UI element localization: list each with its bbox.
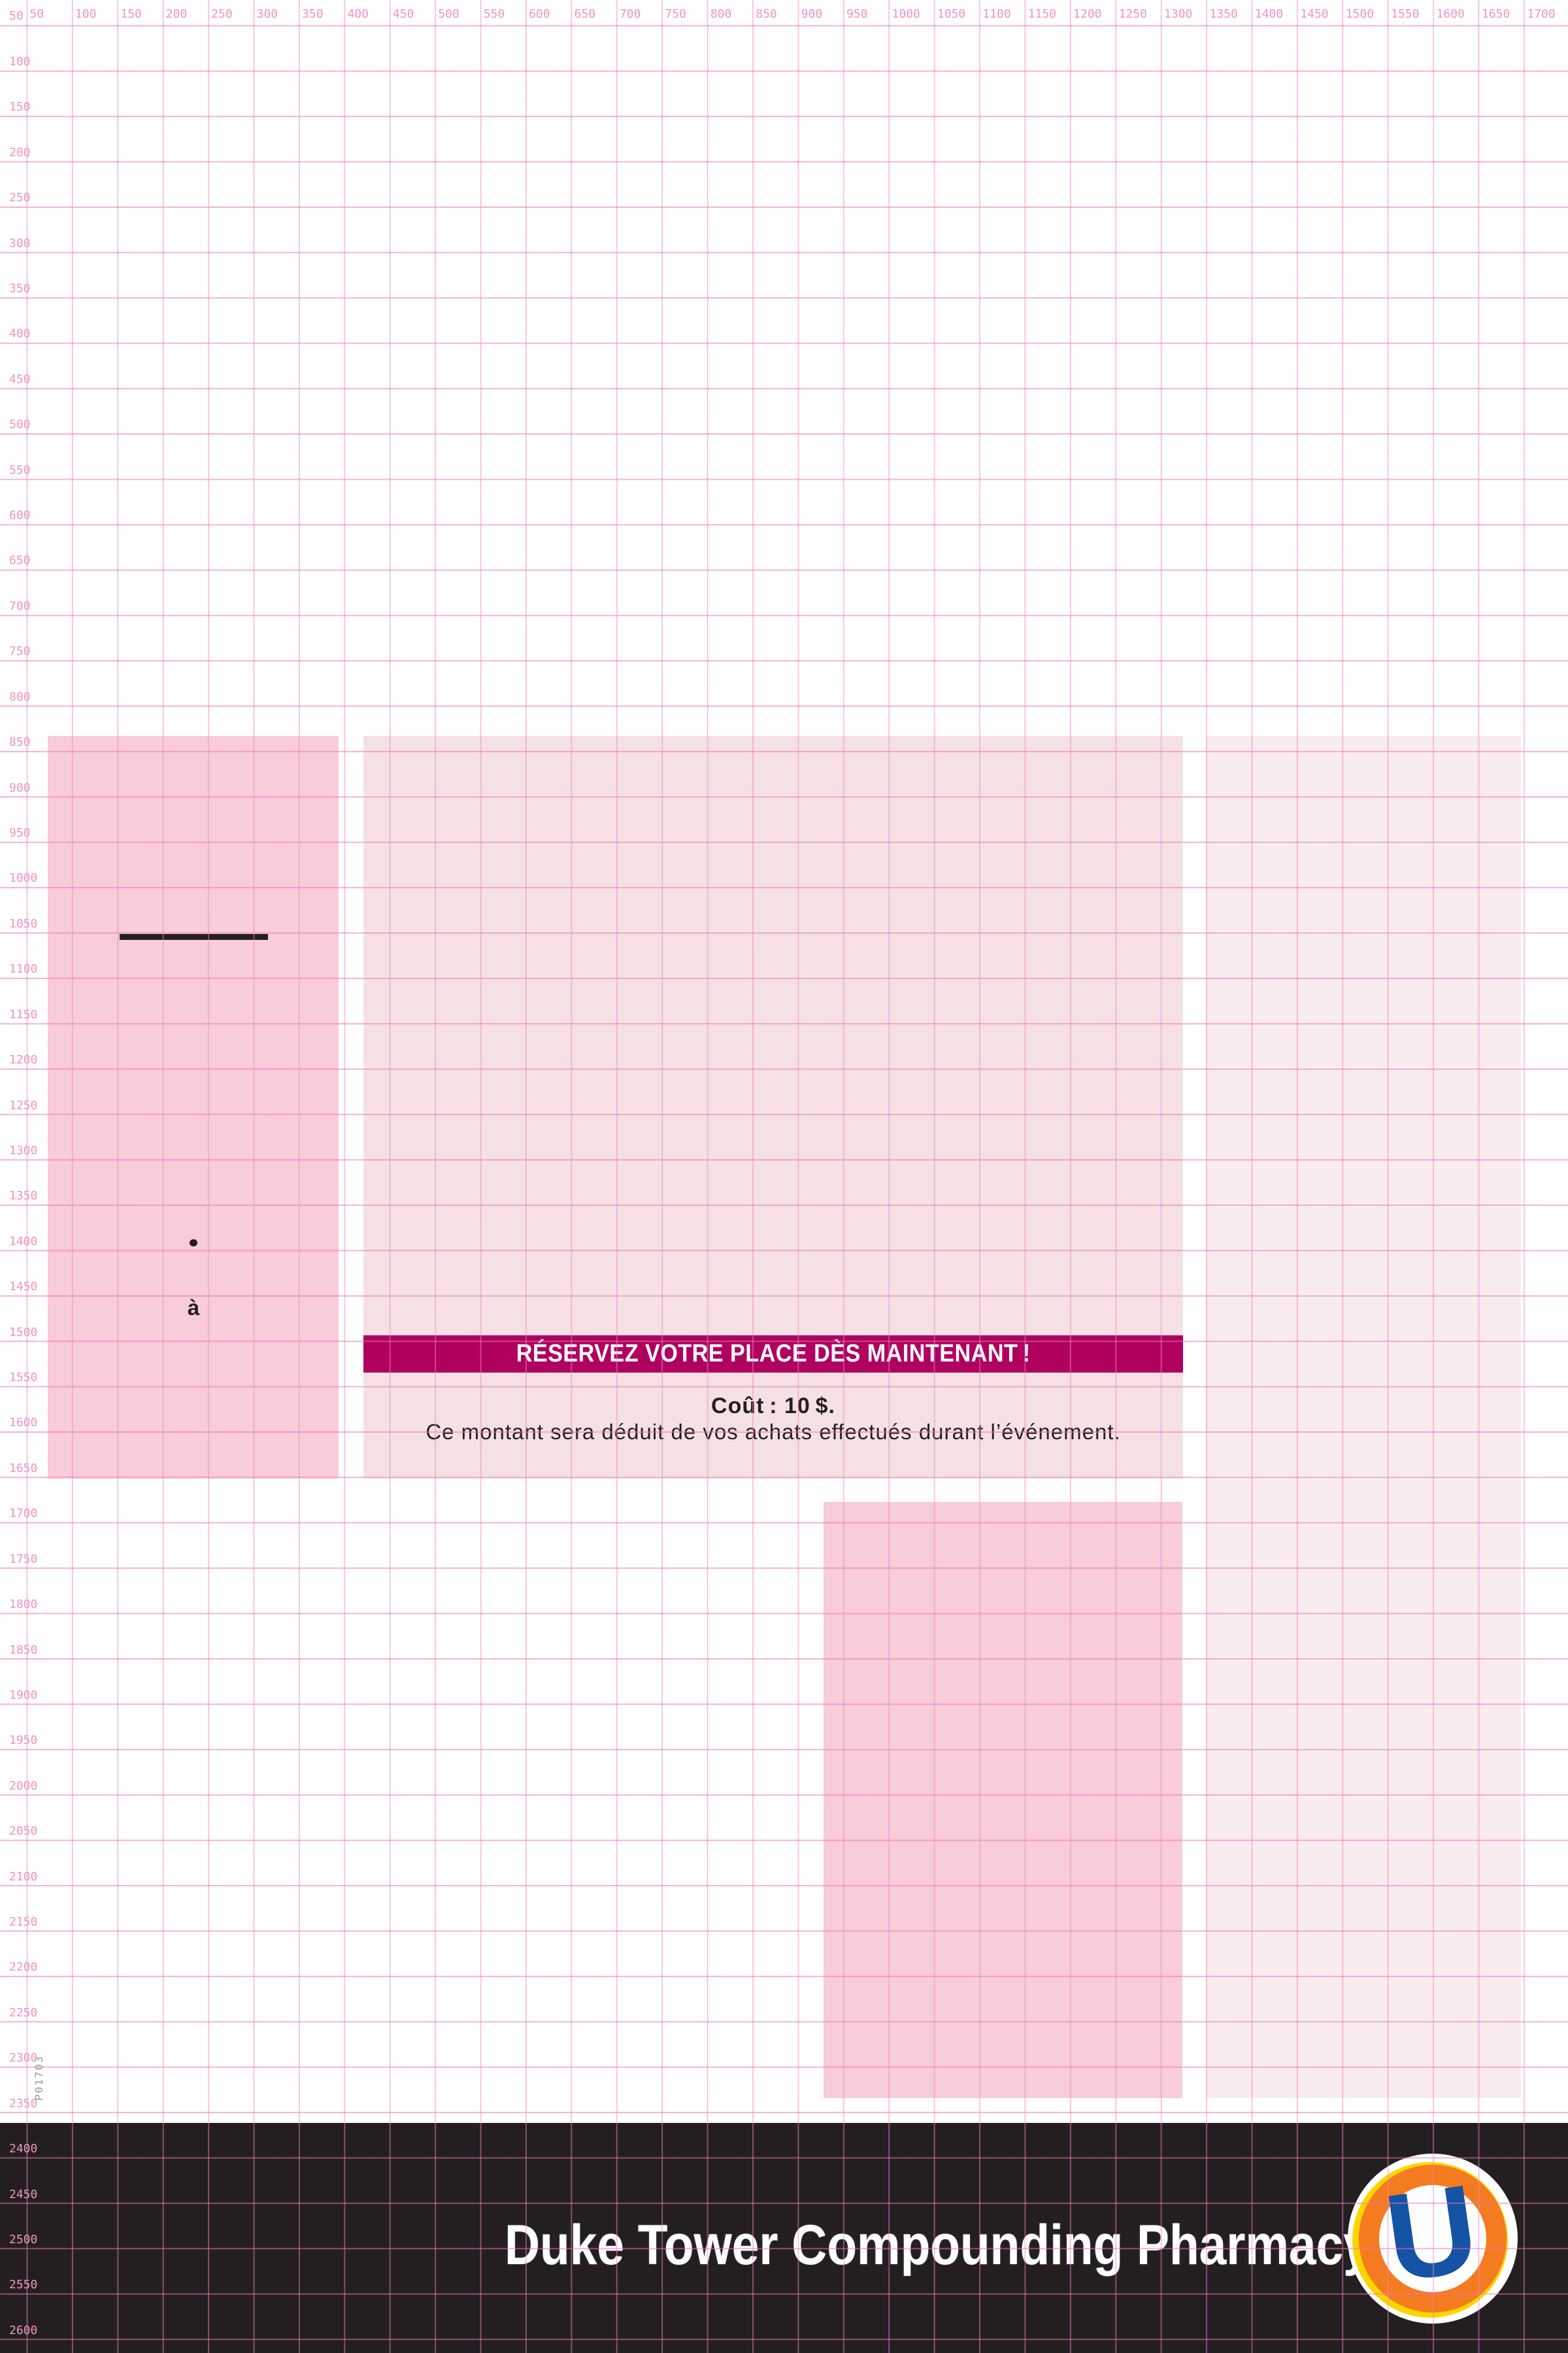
- ruler-top-label: 1100: [982, 8, 1010, 21]
- ruler-top-label: 400: [347, 8, 369, 21]
- ruler-top-label: 1300: [1164, 8, 1192, 21]
- ruler-top-label: 1200: [1073, 8, 1101, 21]
- ruler-top-label: 500: [438, 8, 459, 21]
- ruler-top-label: 700: [620, 8, 641, 21]
- ruler-top-label: 650: [575, 8, 596, 21]
- date-underline: [120, 934, 268, 940]
- placeholder-block-left: [48, 736, 339, 1478]
- ruler-top-label: 1450: [1300, 8, 1328, 21]
- flyer-template-canvas: à RÉSERVEZ VOTRE PLACE DÈS MAINTENANT ! …: [0, 0, 1568, 2353]
- ruler-top-label: 600: [529, 8, 550, 21]
- ruler-left-label: 1550: [9, 1371, 37, 1384]
- ruler-top-label: 1500: [1346, 8, 1374, 21]
- ruler-top-label: 900: [801, 8, 823, 21]
- ruler-left-label: 2100: [9, 1871, 37, 1884]
- ruler-top-label: 300: [257, 8, 278, 21]
- location-prefix-text: à: [174, 1295, 213, 1320]
- ruler-left-label: 500: [9, 418, 31, 431]
- ruler-left-label: 250: [9, 192, 31, 205]
- ruler-left-label: 300: [9, 237, 31, 250]
- ruler-left-label: 200: [9, 146, 31, 159]
- ruler-top-label: 1250: [1119, 8, 1147, 21]
- ruler-left-label: 1200: [9, 1054, 37, 1067]
- ruler-left-label: 1400: [9, 1235, 37, 1248]
- list-bullet-dot: [190, 1239, 197, 1246]
- ruler-left-label: 650: [9, 554, 31, 567]
- ruler-top-label: 1550: [1391, 8, 1419, 21]
- store-name-text: Duke Tower Compounding Pharmacy: [505, 2213, 1371, 2278]
- placeholder-block-bottom: [824, 1502, 1182, 2098]
- reserve-banner: RÉSERVEZ VOTRE PLACE DÈS MAINTENANT !: [363, 1335, 1183, 1373]
- ruler-left-label: 1000: [9, 872, 37, 885]
- ruler-left-label: 50: [9, 10, 24, 23]
- ruler-left-label: 1050: [9, 918, 37, 931]
- reserve-banner-text: RÉSERVEZ VOTRE PLACE DÈS MAINTENANT !: [516, 1340, 1031, 1368]
- ruler-left-label: 1650: [9, 1462, 37, 1475]
- ruler-top-label: 1000: [892, 8, 920, 21]
- ruler-left-label: 1250: [9, 1099, 37, 1112]
- ruler-top-label: 1650: [1482, 8, 1510, 21]
- ruler-left-label: 2150: [9, 1916, 37, 1929]
- ruler-left-label: 1150: [9, 1009, 37, 1022]
- ruler-left-label: 1950: [9, 1734, 37, 1747]
- ruler-top-label: 450: [393, 8, 414, 21]
- ruler-top-label: 200: [166, 8, 188, 21]
- ruler-left-label: 1750: [9, 1553, 37, 1566]
- ruler-left-label: 1700: [9, 1507, 37, 1520]
- ruler-left-label: 1850: [9, 1644, 37, 1657]
- ruler-left-label: 1800: [9, 1598, 37, 1611]
- ruler-top-label: 800: [710, 8, 732, 21]
- ruler-left-label: 600: [9, 509, 31, 522]
- ruler-left-label: 1900: [9, 1689, 37, 1702]
- ruler-top-label: 1350: [1209, 8, 1237, 21]
- logo-inner-disc: U: [1379, 2185, 1486, 2292]
- placeholder-block-right: [1206, 736, 1521, 2098]
- ruler-top-label: 150: [120, 8, 142, 21]
- ruler-top-label: 250: [211, 8, 233, 21]
- cost-note-text: Ce montant sera déduit de vos achats eff…: [265, 1420, 1281, 1444]
- ruler-top-label: 850: [756, 8, 777, 21]
- ruler-left-label: 2200: [9, 1961, 37, 1974]
- ruler-left-label: 1100: [9, 963, 37, 976]
- logo-letter-u-icon: U: [1379, 2165, 1485, 2301]
- ruler-left-label: 2250: [9, 2007, 37, 2020]
- print-code-label: P01703: [33, 2055, 45, 2101]
- ruler-left-label: 2000: [9, 1780, 37, 1793]
- ruler-left-label: 100: [9, 56, 31, 69]
- ruler-top-label: 1150: [1028, 8, 1056, 21]
- ruler-top-label: 950: [846, 8, 868, 21]
- ruler-left-label: 800: [9, 691, 31, 704]
- ruler-left-label: 950: [9, 827, 31, 840]
- ruler-left-label: 450: [9, 373, 31, 386]
- ruler-top-label: 100: [75, 8, 97, 21]
- ruler-left-label: 550: [9, 464, 31, 477]
- ruler-top-label: 550: [484, 8, 505, 21]
- ruler-top-label: 350: [302, 8, 324, 21]
- ruler-left-label: 150: [9, 101, 31, 114]
- uniprix-logo: U: [1348, 2154, 1518, 2324]
- cost-text: Coût : 10 $.: [363, 1393, 1183, 1419]
- ruler-top-label: 750: [665, 8, 686, 21]
- ruler-top-label: 50: [30, 8, 44, 21]
- ruler-left-label: 850: [9, 736, 31, 749]
- ruler-left-label: 2050: [9, 1825, 37, 1838]
- ruler-left-label: 350: [9, 282, 31, 295]
- ruler-top-label: 1700: [1527, 8, 1555, 21]
- ruler-left-label: 700: [9, 600, 31, 613]
- ruler-left-label: 1450: [9, 1280, 37, 1293]
- ruler-left-label: 400: [9, 327, 31, 341]
- ruler-top-label: 1050: [937, 8, 965, 21]
- ruler-left-label: 1600: [9, 1416, 37, 1429]
- ruler-left-label: 900: [9, 782, 31, 795]
- ruler-left-label: 1350: [9, 1190, 37, 1203]
- ruler-top-label: 1400: [1255, 8, 1283, 21]
- ruler-left-label: 1300: [9, 1144, 37, 1158]
- ruler-left-label: 1500: [9, 1326, 37, 1339]
- ruler-top-label: 1600: [1437, 8, 1465, 21]
- ruler-left-label: 750: [9, 645, 31, 658]
